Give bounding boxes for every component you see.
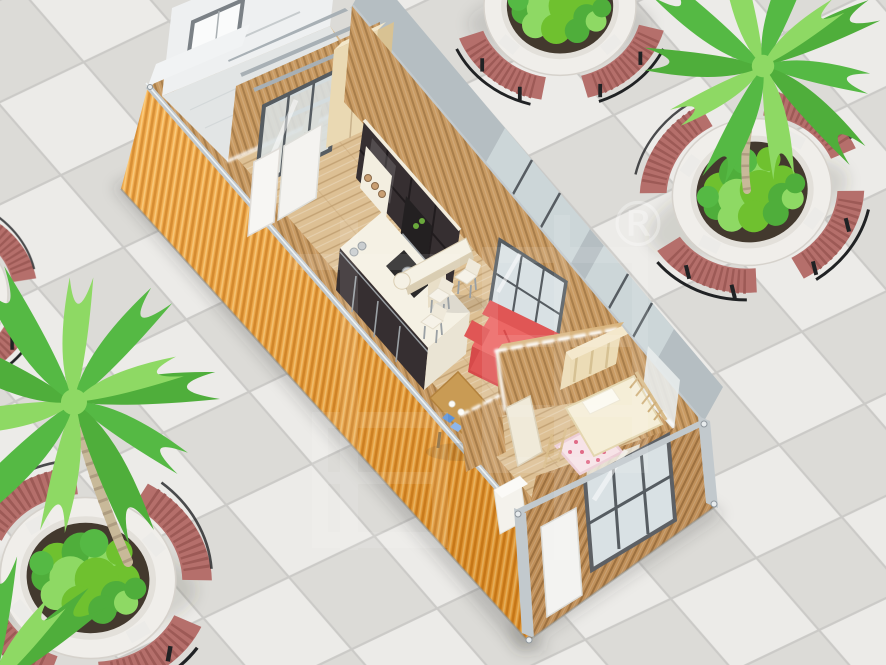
registered-trademark-symbol: ® [607, 188, 669, 261]
render-canvas: 3D isometric render of a prefab containe… [0, 0, 886, 665]
scene-3d-render: 3D isometric render of a prefab containe… [0, 0, 886, 665]
